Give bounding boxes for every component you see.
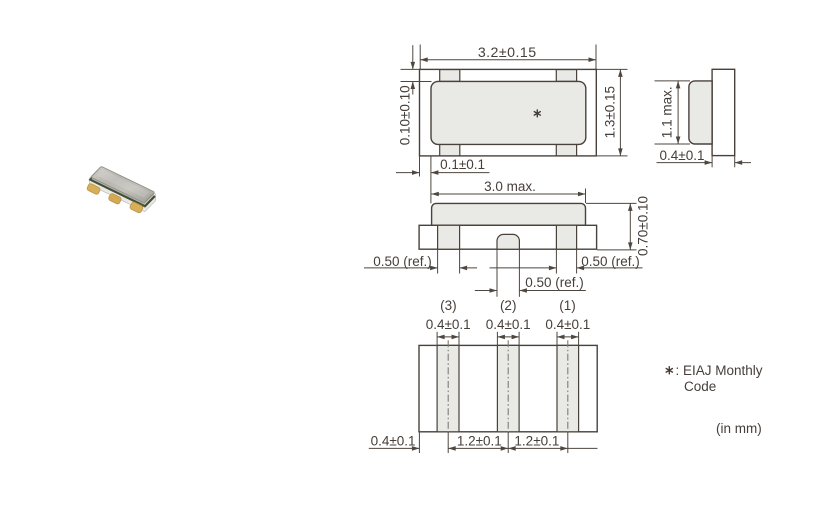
svg-text:(2): (2) — [500, 298, 517, 313]
svg-text:0.70±0.10: 0.70±0.10 — [636, 196, 651, 256]
svg-text:1.3±0.15: 1.3±0.15 — [603, 86, 618, 138]
svg-text:3.0 max.: 3.0 max. — [484, 179, 536, 194]
svg-text:0.50 (ref.): 0.50 (ref.) — [373, 254, 432, 269]
svg-text:0.4±0.1: 0.4±0.1 — [426, 317, 471, 332]
svg-text:3.2±0.15: 3.2±0.15 — [478, 45, 537, 61]
svg-text:(in mm): (in mm) — [716, 421, 762, 436]
svg-text:0.50 (ref.): 0.50 (ref.) — [525, 275, 584, 290]
svg-text:Code: Code — [684, 379, 716, 394]
svg-text:(3): (3) — [440, 298, 457, 313]
svg-text:1.2±0.1: 1.2±0.1 — [514, 433, 559, 448]
svg-text:0.50 (ref.): 0.50 (ref.) — [581, 254, 640, 269]
svg-text:(1): (1) — [559, 298, 576, 313]
svg-text:0.10±0.10: 0.10±0.10 — [397, 85, 412, 145]
svg-text:1.1 max.: 1.1 max. — [660, 86, 675, 138]
svg-text:0.4±0.1: 0.4±0.1 — [371, 433, 416, 448]
svg-text:: EIAJ Monthly: : EIAJ Monthly — [676, 363, 763, 378]
svg-text:0.4±0.1: 0.4±0.1 — [486, 317, 531, 332]
svg-text:0.4±0.1: 0.4±0.1 — [545, 317, 590, 332]
svg-text:0.1±0.1: 0.1±0.1 — [440, 157, 485, 172]
svg-text:1.2±0.1: 1.2±0.1 — [457, 433, 502, 448]
svg-text:0.4±0.1: 0.4±0.1 — [660, 148, 705, 163]
